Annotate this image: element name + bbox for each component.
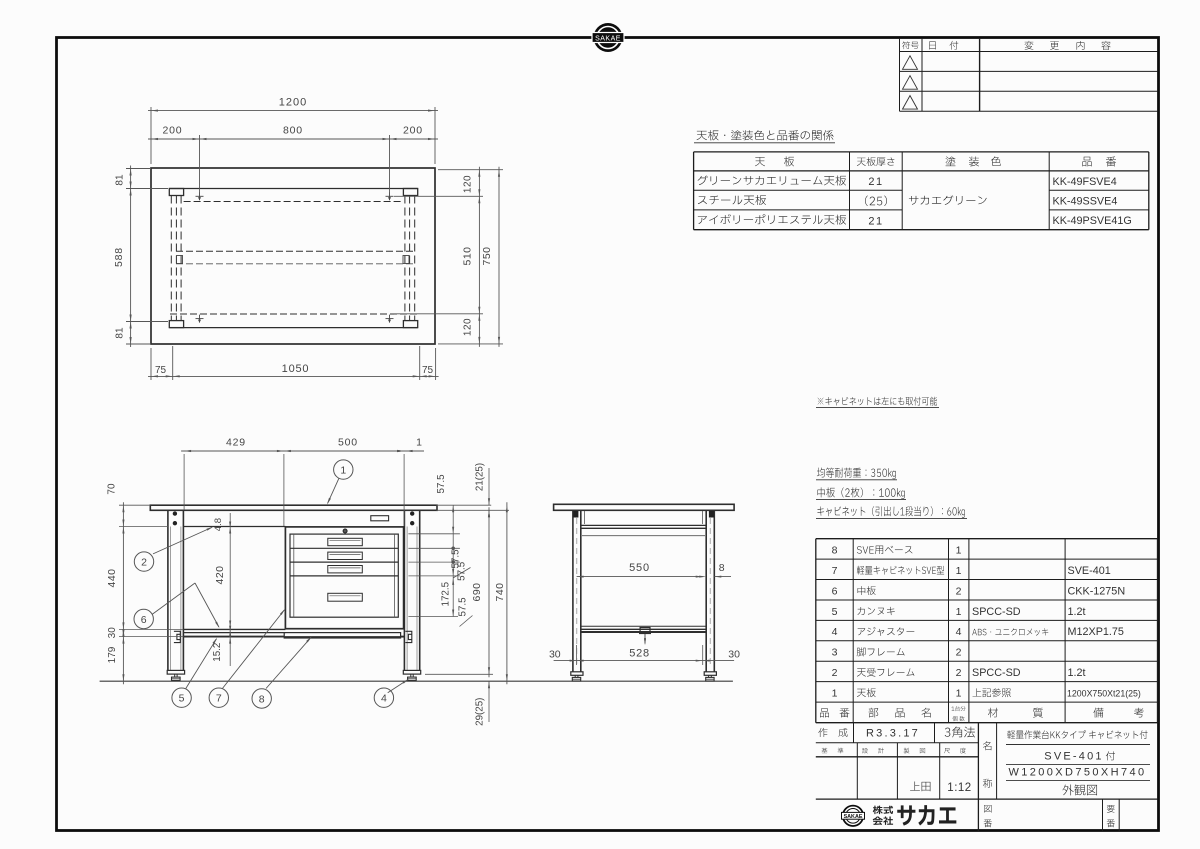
svg-text:440: 440 (106, 568, 118, 587)
svg-text:4: 4 (956, 626, 962, 638)
svg-text:1: 1 (956, 606, 962, 618)
svg-text:1200X750Xt21(25): 1200X750Xt21(25) (1067, 688, 1141, 698)
svg-text:57.5: 57.5 (456, 561, 467, 581)
svg-text:4.8: 4.8 (213, 518, 224, 531)
svg-text:SPCC-SD: SPCC-SD (972, 667, 1021, 679)
svg-text:4: 4 (832, 626, 838, 638)
svg-text:KK-49FSVE4: KK-49FSVE4 (1053, 176, 1117, 188)
svg-text:2: 2 (956, 585, 962, 597)
svg-text:550: 550 (629, 562, 650, 574)
svg-text:1: 1 (832, 687, 838, 699)
svg-text:21: 21 (868, 176, 883, 188)
svg-text:7: 7 (216, 693, 222, 705)
svg-text:800: 800 (283, 125, 303, 137)
svg-text:120: 120 (463, 318, 474, 336)
svg-text:30: 30 (549, 648, 561, 660)
svg-text:57.5: 57.5 (457, 597, 468, 617)
svg-text:528: 528 (629, 648, 650, 660)
svg-text:1:12: 1:12 (947, 782, 971, 794)
svg-text:KK-49PSVE41G: KK-49PSVE41G (1053, 215, 1132, 227)
svg-text:5: 5 (179, 693, 185, 705)
svg-text:21: 21 (868, 215, 883, 227)
svg-text:5: 5 (832, 606, 838, 618)
svg-text:M12XP1.75: M12XP1.75 (1068, 626, 1124, 638)
svg-text:81: 81 (115, 174, 126, 186)
svg-text:1: 1 (416, 436, 422, 448)
svg-text:W1200XD750XH740: W1200XD750XH740 (1008, 767, 1146, 779)
svg-text:200: 200 (403, 125, 423, 137)
svg-text:SAKAE: SAKAE (595, 36, 621, 43)
svg-text:CKK-1275N: CKK-1275N (1068, 585, 1126, 597)
svg-text:2: 2 (956, 647, 962, 659)
svg-text:179: 179 (107, 646, 118, 663)
svg-text:30: 30 (728, 648, 740, 660)
svg-text:500: 500 (338, 436, 358, 448)
svg-text:2: 2 (956, 667, 962, 679)
svg-text:7: 7 (832, 565, 838, 577)
svg-text:8: 8 (259, 693, 265, 705)
svg-text:1.2t: 1.2t (1068, 667, 1086, 679)
svg-text:KK-49SSVE4: KK-49SSVE4 (1053, 195, 1118, 207)
svg-text:6: 6 (832, 585, 838, 597)
svg-text:R3.3.17: R3.3.17 (866, 728, 920, 740)
svg-text:81: 81 (115, 327, 126, 339)
svg-text:690: 690 (471, 582, 483, 601)
svg-text:2: 2 (141, 556, 147, 568)
svg-text:SVE-401: SVE-401 (1044, 751, 1103, 763)
svg-text:6: 6 (141, 614, 147, 626)
svg-text:172.5: 172.5 (441, 581, 452, 606)
svg-text:1.2t: 1.2t (1068, 606, 1086, 618)
svg-text:2: 2 (832, 667, 838, 679)
svg-text:75: 75 (422, 365, 434, 376)
svg-text:70: 70 (107, 483, 118, 495)
svg-text:1050: 1050 (282, 363, 310, 375)
svg-text:8: 8 (832, 545, 838, 557)
svg-text:1: 1 (956, 545, 962, 557)
svg-text:21(25): 21(25) (475, 463, 486, 491)
svg-text:15.2: 15.2 (212, 643, 223, 662)
svg-text:1: 1 (340, 464, 346, 476)
svg-text:429: 429 (226, 436, 246, 448)
svg-text:510: 510 (462, 246, 474, 265)
svg-text:57.5: 57.5 (436, 474, 447, 494)
svg-text:750: 750 (481, 246, 493, 265)
svg-text:SVE-401: SVE-401 (1068, 565, 1111, 577)
svg-text:200: 200 (163, 125, 183, 137)
svg-text:8: 8 (719, 562, 725, 574)
svg-text:420: 420 (214, 565, 226, 584)
svg-text:4: 4 (381, 693, 387, 705)
svg-text:740: 740 (494, 582, 506, 601)
svg-text:75: 75 (155, 365, 167, 376)
svg-text:1: 1 (956, 687, 962, 699)
svg-text:SAKAE: SAKAE (844, 814, 863, 820)
svg-text:1200: 1200 (279, 97, 307, 109)
svg-text:29(25): 29(25) (475, 698, 486, 726)
svg-text:3: 3 (832, 647, 838, 659)
svg-text:30: 30 (107, 627, 118, 639)
svg-text:120: 120 (463, 175, 474, 193)
svg-text:SPCC-SD: SPCC-SD (972, 606, 1021, 618)
svg-text:1: 1 (956, 565, 962, 577)
svg-text:588: 588 (113, 247, 125, 267)
